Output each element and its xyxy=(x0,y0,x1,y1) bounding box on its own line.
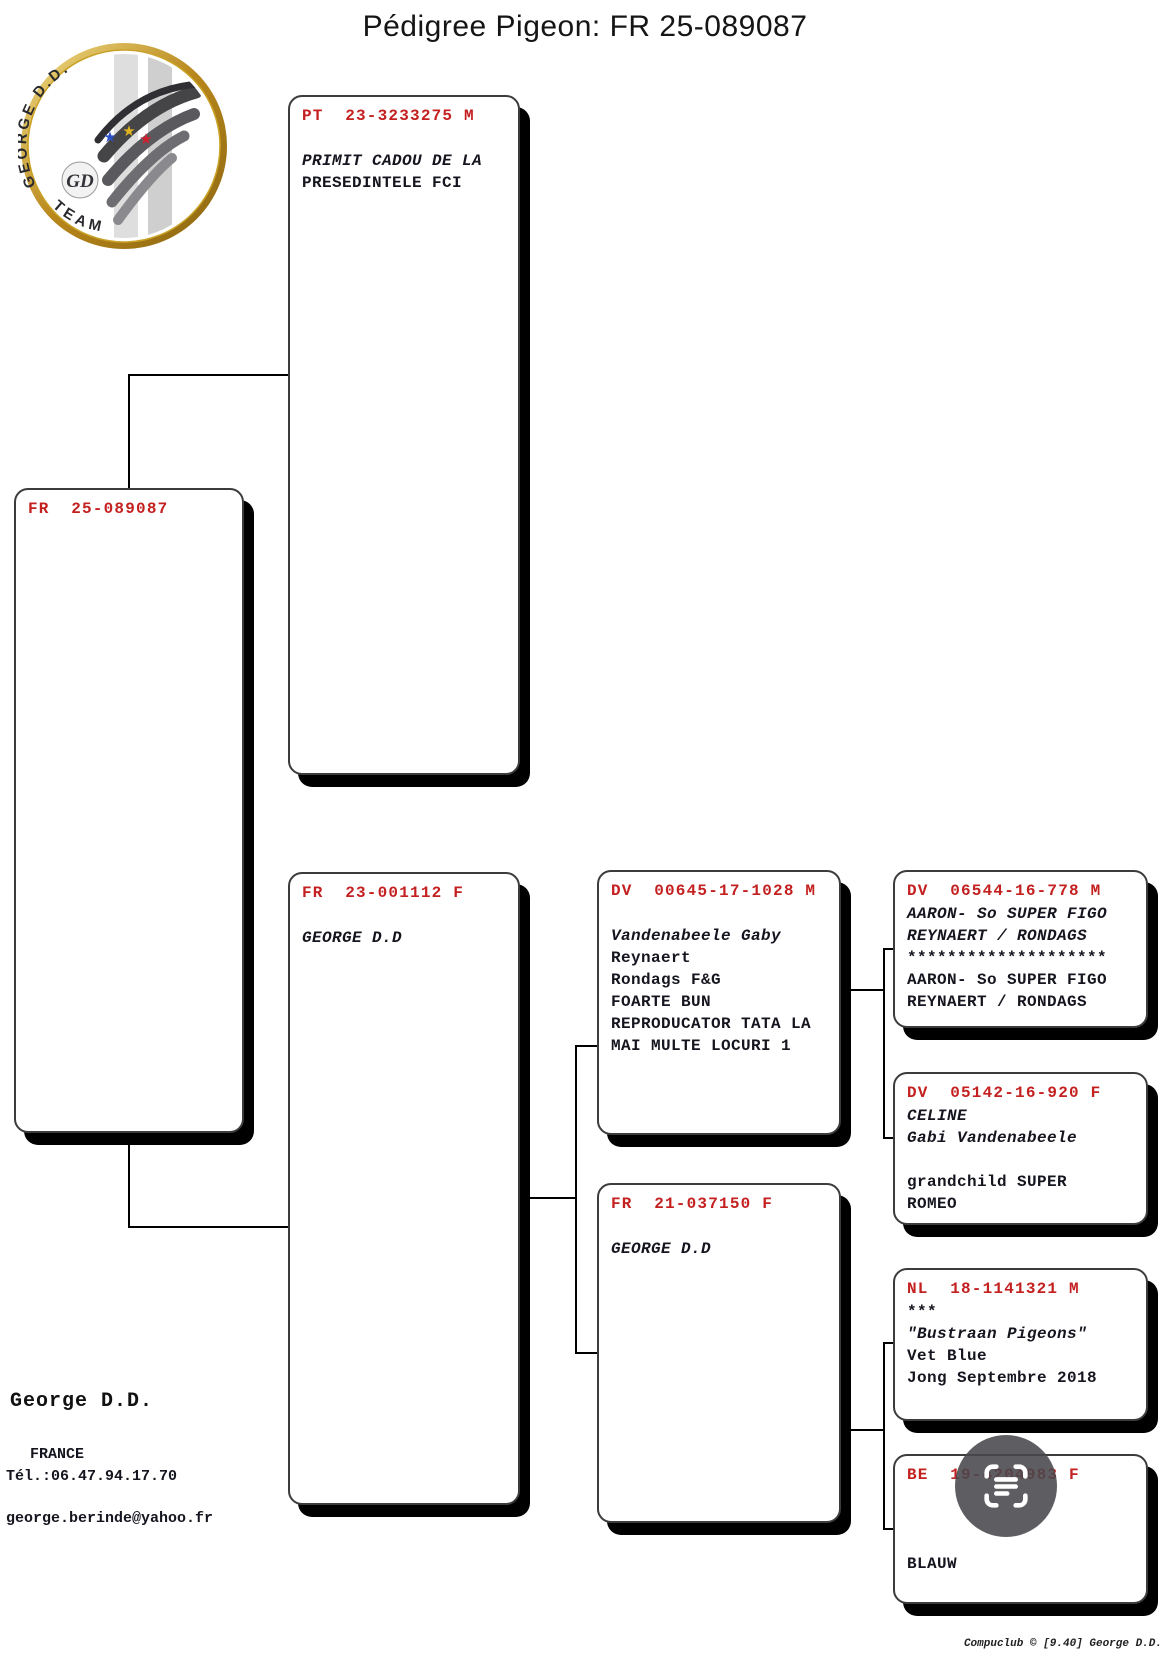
pedigree-line: Jong Septembre 2018 xyxy=(907,1367,1140,1389)
pedigree-line xyxy=(302,128,512,150)
pedigree-line: ******************** xyxy=(907,947,1140,969)
scan-text-icon xyxy=(977,1457,1035,1515)
connector-dam-sire-stub xyxy=(575,1045,597,1047)
connector-damsire-bracket-v xyxy=(883,948,885,1139)
ring-number-dam-sire: DV 00645-17-1028 M xyxy=(611,879,833,903)
pedigree-page: Pédigree Pigeon: FR 25-089087 ★ ★ ★ xyxy=(0,0,1170,1679)
pedigree-box-dam: FR 23-001112 F GEORGE D.D xyxy=(288,872,520,1505)
pedigree-line: Reynaert xyxy=(611,947,833,969)
pedigree-line xyxy=(907,1149,1140,1171)
pedigree-box-sire: PT 23-3233275 M PRIMIT CADOU DE LA PRESE… xyxy=(288,95,520,775)
owner-phone: Tél.:06.47.94.17.70 xyxy=(6,1468,177,1485)
pedigree-line xyxy=(907,1531,1140,1553)
scan-button[interactable] xyxy=(955,1435,1057,1537)
ring-number-sire: PT 23-3233275 M xyxy=(302,104,512,128)
pedigree-line: Vet Blue xyxy=(907,1345,1140,1367)
pedigree-line: REYNAERT / RONDAGS xyxy=(907,991,1140,1013)
connector-damdam-dam-stub xyxy=(883,1528,893,1530)
pedigree-line: grandchild SUPER xyxy=(907,1171,1140,1193)
connector-damdam-bracket xyxy=(841,1429,883,1431)
logo-monogram: GD xyxy=(66,171,94,192)
star-red-icon: ★ xyxy=(139,130,152,148)
star-yellow-icon: ★ xyxy=(122,122,135,140)
owner-name: George D.D. xyxy=(10,1390,153,1413)
ring-number-dam-dam: FR 21-037150 F xyxy=(611,1192,833,1216)
pedigree-line: GEORGE D.D xyxy=(302,927,512,949)
pedigree-line: Vandenabeele Gaby xyxy=(611,925,833,947)
pedigree-line: PRESEDINTELE FCI xyxy=(302,172,512,194)
page-title: Pédigree Pigeon: FR 25-089087 xyxy=(0,10,1170,44)
connector-dam-dam-stub xyxy=(575,1352,597,1354)
pedigree-line: ROMEO xyxy=(907,1193,1140,1215)
connector-damsire-bracket xyxy=(841,989,883,991)
pedigree-line: FOARTE BUN xyxy=(611,991,833,1013)
pedigree-line: *** xyxy=(907,1301,1140,1323)
star-blue-icon: ★ xyxy=(103,128,116,146)
ring-number-dam-sire-dam: DV 05142-16-920 F xyxy=(907,1081,1140,1105)
pedigree-line: AARON- So SUPER FIGO xyxy=(907,969,1140,991)
software-credit: Compuclub © [9.40] George D.D. xyxy=(964,1638,1162,1650)
pedigree-line: Gabi Vandenabeele xyxy=(907,1127,1140,1149)
pedigree-line: PRIMIT CADOU DE LA xyxy=(302,150,512,172)
pedigree-box-dam-sire: DV 00645-17-1028 M Vandenabeele Gaby Rey… xyxy=(597,870,841,1135)
connector-subject-dam-v xyxy=(128,1133,130,1228)
connector-subject-sire-v xyxy=(128,374,130,488)
pedigree-line: "Bustraan Pigeons" xyxy=(907,1323,1140,1345)
connector-dam-bracket xyxy=(520,1197,577,1199)
ring-number-subject: FR 25-089087 xyxy=(28,497,236,521)
pedigree-box-dam-dam-sire: NL 18-1141321 M *** "Bustraan Pigeons" V… xyxy=(893,1268,1148,1421)
pedigree-line xyxy=(611,1216,833,1238)
pedigree-line: REPRODUCATOR TATA LA xyxy=(611,1013,833,1035)
owner-email: george.berinde@yahoo.fr xyxy=(6,1510,213,1527)
pedigree-line: REYNAERT / RONDAGS xyxy=(907,925,1140,947)
pedigree-line: CELINE xyxy=(907,1105,1140,1127)
ring-number-dam-sire-sire: DV 06544-16-778 M xyxy=(907,879,1140,903)
pedigree-box-dam-sire-dam: DV 05142-16-920 F CELINE Gabi Vandenabee… xyxy=(893,1072,1148,1225)
ring-number-dam: FR 23-001112 F xyxy=(302,881,512,905)
pedigree-line: GEORGE D.D xyxy=(611,1238,833,1260)
pedigree-line xyxy=(611,903,833,925)
pedigree-line xyxy=(302,905,512,927)
connector-damdam-sire-stub xyxy=(883,1342,893,1344)
connector-damsire-sire-stub xyxy=(883,948,893,950)
connector-damsire-dam-stub xyxy=(883,1137,893,1139)
ring-number-dam-dam-sire: NL 18-1141321 M xyxy=(907,1277,1140,1301)
pedigree-box-subject: FR 25-089087 xyxy=(14,488,244,1133)
pedigree-line: BLAUW xyxy=(907,1553,1140,1575)
owner-country: FRANCE xyxy=(30,1446,84,1463)
connector-dam-bracket-v xyxy=(575,1045,577,1354)
pedigree-box-dam-sire-sire: DV 06544-16-778 M AARON- So SUPER FIGO R… xyxy=(893,870,1148,1028)
pedigree-box-dam-dam: FR 21-037150 F GEORGE D.D xyxy=(597,1183,841,1523)
pedigree-line: MAI MULTE LOCURI 1 xyxy=(611,1035,833,1057)
pedigree-line: AARON- So SUPER FIGO xyxy=(907,903,1140,925)
connector-subject-dam xyxy=(128,1226,288,1228)
team-logo: ★ ★ ★ GD GEORGE D.D. TEAM xyxy=(18,40,230,252)
connector-damdam-bracket-v xyxy=(883,1342,885,1530)
connector-subject-sire xyxy=(128,374,288,376)
pedigree-line: Rondags F&G xyxy=(611,969,833,991)
